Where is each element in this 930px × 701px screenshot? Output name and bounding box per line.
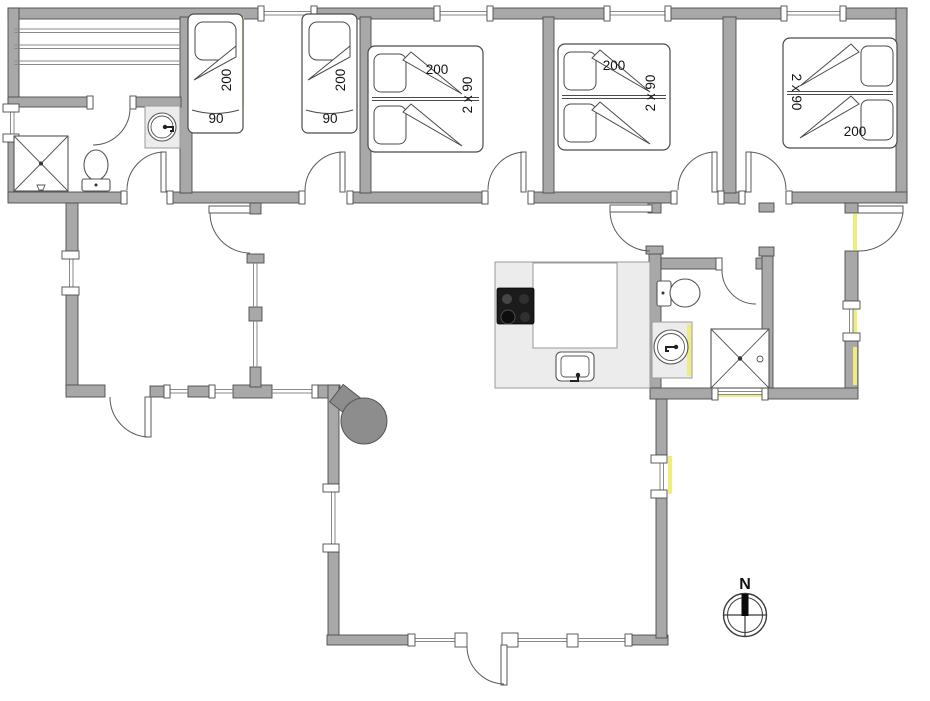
bed-width-label: 2 x 90 bbox=[460, 77, 475, 114]
bed-width-label: 90 bbox=[322, 111, 337, 126]
bed-single-2: 200 90 bbox=[302, 14, 357, 133]
window bbox=[651, 455, 672, 498]
door bbox=[671, 152, 724, 204]
window bbox=[712, 387, 768, 400]
door bbox=[853, 206, 903, 251]
bed-length-label: 200 bbox=[603, 58, 626, 73]
beds: 200 90 200 90 200 2 x 90 bbox=[188, 14, 897, 152]
door bbox=[209, 206, 250, 253]
kitchen-sink-icon bbox=[556, 352, 594, 381]
shower-icon bbox=[711, 329, 769, 388]
bed-double-3: 2 x 90 200 bbox=[783, 38, 897, 148]
shower-icon bbox=[14, 136, 68, 191]
bed-width-label: 2 x 90 bbox=[789, 74, 804, 111]
bathroom-2 bbox=[652, 279, 769, 388]
door bbox=[299, 152, 353, 204]
window bbox=[408, 633, 632, 647]
window bbox=[434, 6, 493, 21]
floor-plan-svg: 200 90 200 90 200 2 x 90 bbox=[0, 0, 930, 701]
compass-needle bbox=[742, 594, 749, 616]
storage-shelving bbox=[14, 29, 181, 65]
compass-rose-icon: N bbox=[724, 576, 767, 637]
door bbox=[87, 96, 136, 145]
bed-single-1: 200 90 bbox=[188, 14, 243, 133]
bed-length-label: 200 bbox=[426, 62, 449, 77]
bed-width-label: 90 bbox=[208, 111, 223, 126]
bathroom-1 bbox=[14, 106, 180, 191]
window bbox=[604, 6, 671, 21]
window bbox=[323, 484, 339, 552]
door bbox=[467, 633, 518, 685]
door bbox=[482, 152, 534, 204]
cooktop-icon bbox=[497, 288, 534, 324]
bed-length-label: 200 bbox=[219, 69, 234, 92]
bed-double-1: 200 2 x 90 bbox=[368, 46, 483, 152]
sink-icon bbox=[652, 322, 692, 378]
sink-icon bbox=[145, 106, 180, 148]
floor-plan-page: 200 90 200 90 200 2 x 90 bbox=[0, 0, 930, 701]
door bbox=[739, 152, 792, 204]
toilet-icon bbox=[82, 150, 110, 191]
bed-length-label: 200 bbox=[333, 69, 348, 92]
window bbox=[781, 6, 846, 21]
window bbox=[62, 251, 79, 295]
door bbox=[610, 203, 661, 251]
door bbox=[716, 258, 756, 304]
bed-double-2: 200 2 x 90 bbox=[558, 44, 670, 150]
bed-length-label: 200 bbox=[844, 124, 867, 139]
compass-north-label: N bbox=[739, 576, 751, 593]
toilet-icon bbox=[657, 279, 700, 307]
bed-width-label: 2 x 90 bbox=[643, 75, 658, 112]
door bbox=[110, 397, 151, 437]
kitchen bbox=[495, 262, 650, 388]
door bbox=[121, 152, 173, 204]
